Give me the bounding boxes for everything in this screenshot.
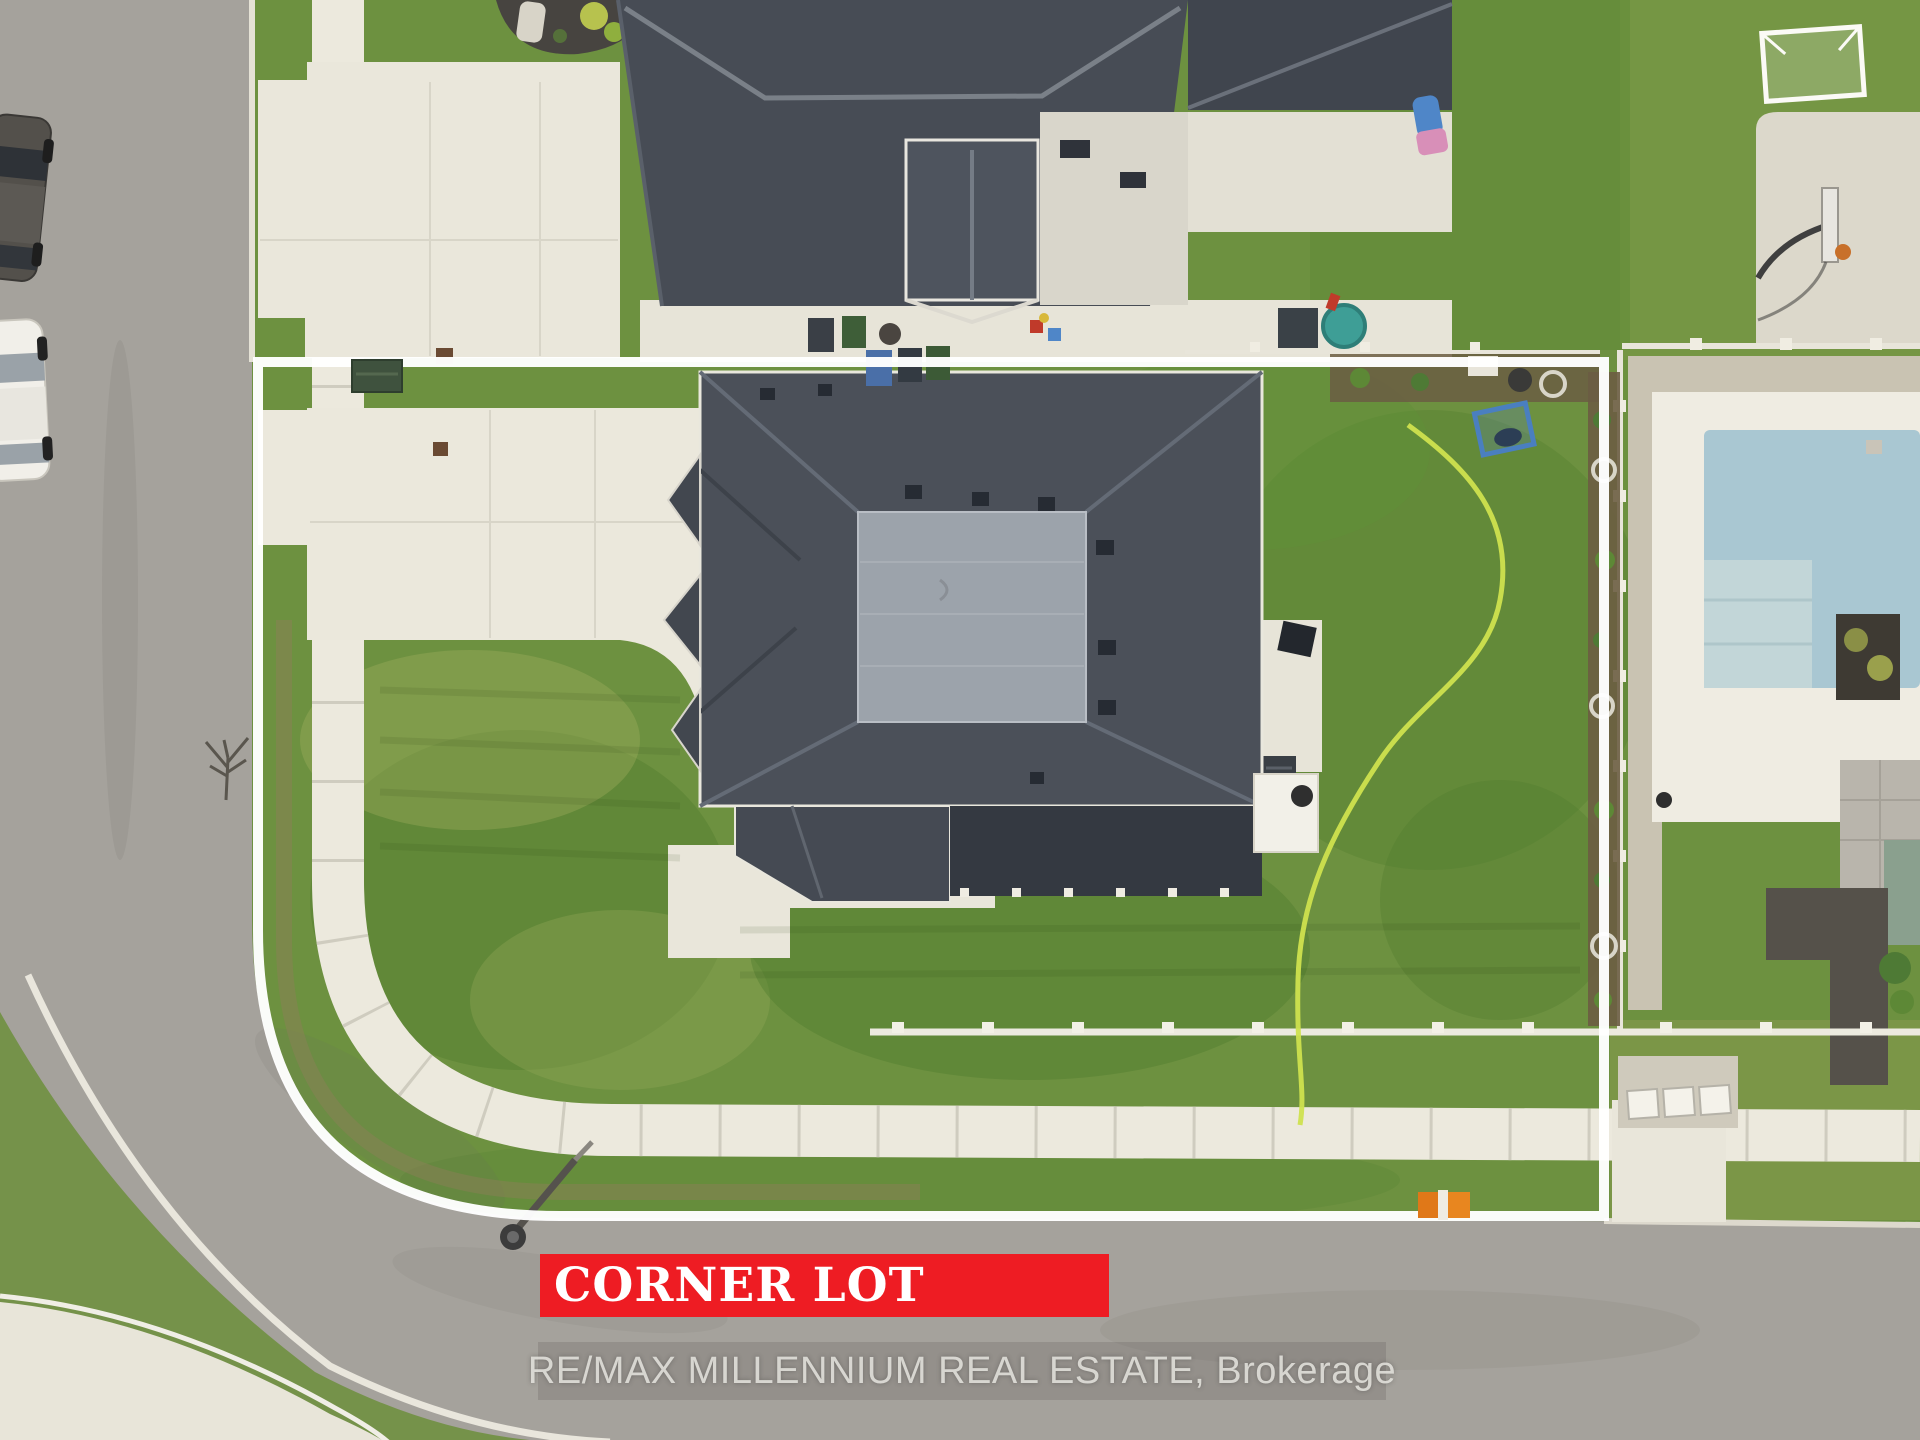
aerial-photo: CORNER LOT RE/MAX MILLENNIUM REAL ESTATE… xyxy=(0,0,1920,1440)
utility-box xyxy=(352,360,402,392)
corner-lot-banner-label: CORNER LOT xyxy=(554,1258,925,1313)
aerial-scene xyxy=(0,0,1920,1440)
green-bin xyxy=(842,316,866,348)
brokerage-watermark-text: RE/MAX MILLENNIUM REAL ESTATE, Brokerage xyxy=(528,1350,1396,1393)
fire-hydrant xyxy=(1418,1190,1470,1220)
sandbox xyxy=(1323,305,1365,347)
parked-car-white xyxy=(0,318,54,481)
brokerage-watermark: RE/MAX MILLENNIUM REAL ESTATE, Brokerage xyxy=(538,1342,1386,1400)
ac-unit xyxy=(1627,1089,1659,1119)
corner-lot-banner: CORNER LOT xyxy=(540,1254,1109,1317)
blue-bin xyxy=(866,350,892,386)
neighbor-dormer xyxy=(906,140,1038,322)
soccer-goal xyxy=(1762,27,1865,102)
neighbor-bottom-right xyxy=(1612,1056,1738,1222)
garden-shed-right xyxy=(1884,840,1920,945)
trash-bin xyxy=(808,318,834,352)
driveway-drain xyxy=(433,442,448,456)
pool-steps xyxy=(1704,560,1812,688)
subject-house xyxy=(664,372,1322,902)
garden-shed xyxy=(1278,308,1318,348)
ac-unit xyxy=(1663,1087,1695,1117)
pool-planter xyxy=(1836,614,1900,700)
basketball xyxy=(1835,244,1851,260)
soccer-net xyxy=(1474,403,1534,455)
white-canopy xyxy=(1254,774,1318,852)
ac-unit xyxy=(1699,1085,1731,1115)
barrel xyxy=(1508,368,1532,392)
round-table xyxy=(879,323,901,345)
covered-porch xyxy=(950,806,1262,896)
flat-roof-section xyxy=(858,512,1086,722)
